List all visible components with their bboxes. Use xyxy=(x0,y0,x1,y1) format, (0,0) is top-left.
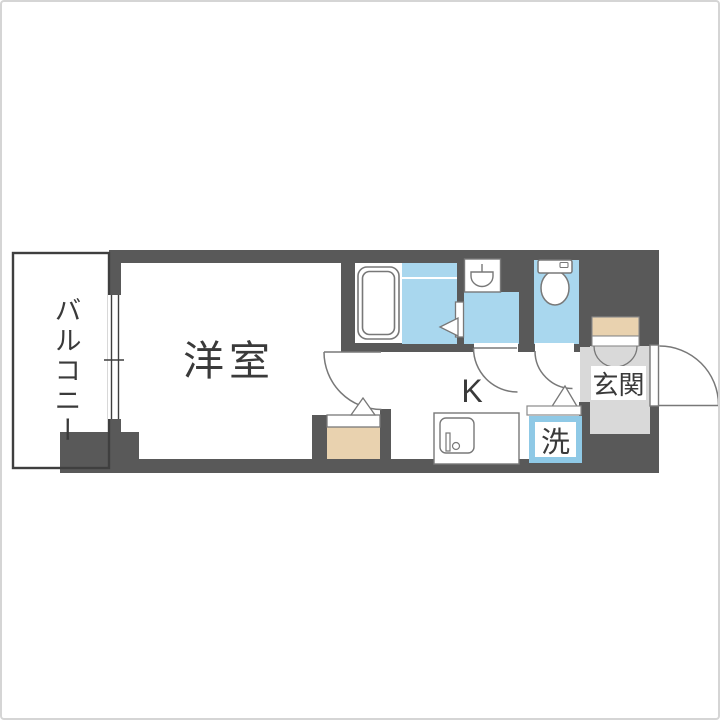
wall-segment xyxy=(109,250,121,295)
wall-segment xyxy=(380,409,391,459)
washing-machine-space: 洗 xyxy=(529,416,582,463)
doorway-gap xyxy=(474,343,518,352)
entrance-floor xyxy=(580,347,590,402)
wall-segment xyxy=(456,250,464,304)
floor-plan-canvas: バルコニー 洋室 K 玄関 洗 xyxy=(0,0,720,720)
wall-segment xyxy=(500,259,519,292)
washbasin-icon xyxy=(465,259,501,292)
kitchen-label: K xyxy=(454,374,490,408)
wall-segment xyxy=(519,250,534,352)
wall-segment xyxy=(456,335,464,345)
laundry-pan-edge xyxy=(527,406,581,415)
wall-segment xyxy=(579,434,659,473)
wall-segment xyxy=(341,250,355,344)
bathroom-floor xyxy=(402,263,457,344)
bathtub-icon xyxy=(358,267,399,339)
wall-segment xyxy=(312,415,327,459)
kitchen-sink-icon xyxy=(434,413,519,464)
entrance-label: 玄関 xyxy=(591,366,646,400)
toilet-floor xyxy=(534,260,579,344)
doorway-gap xyxy=(535,343,574,352)
balcony-label: バルコニー xyxy=(38,273,94,468)
closet-door xyxy=(327,398,380,427)
toilet-door-swing xyxy=(535,351,578,408)
balcony-window xyxy=(104,295,124,419)
washroom-floor xyxy=(464,292,519,344)
western-room-label: 洋室 xyxy=(168,334,290,380)
closet xyxy=(327,427,380,459)
entry-door-swing xyxy=(650,345,719,406)
laundry-label: 洗 xyxy=(541,419,570,461)
wall-segment xyxy=(579,250,659,347)
wall-segment xyxy=(341,343,475,352)
room-door-swing xyxy=(324,352,382,410)
